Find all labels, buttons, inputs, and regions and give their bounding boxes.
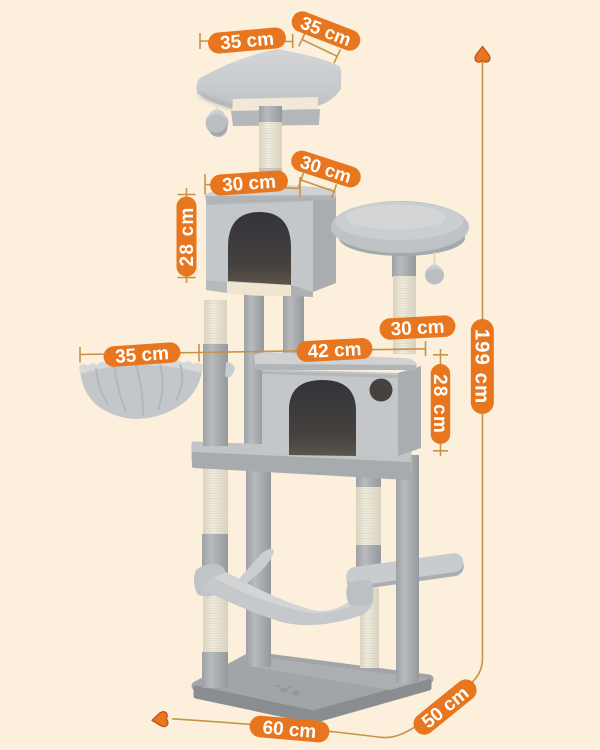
svg-text:199 cm: 199 cm: [470, 329, 493, 405]
svg-text:28 cm: 28 cm: [177, 207, 198, 267]
svg-text:30 cm: 30 cm: [221, 172, 276, 197]
svg-text:30 cm: 30 cm: [390, 317, 445, 341]
svg-text:28 cm: 28 cm: [429, 374, 450, 434]
svg-text:35 cm: 35 cm: [114, 343, 169, 368]
svg-text:42 cm: 42 cm: [307, 339, 362, 363]
